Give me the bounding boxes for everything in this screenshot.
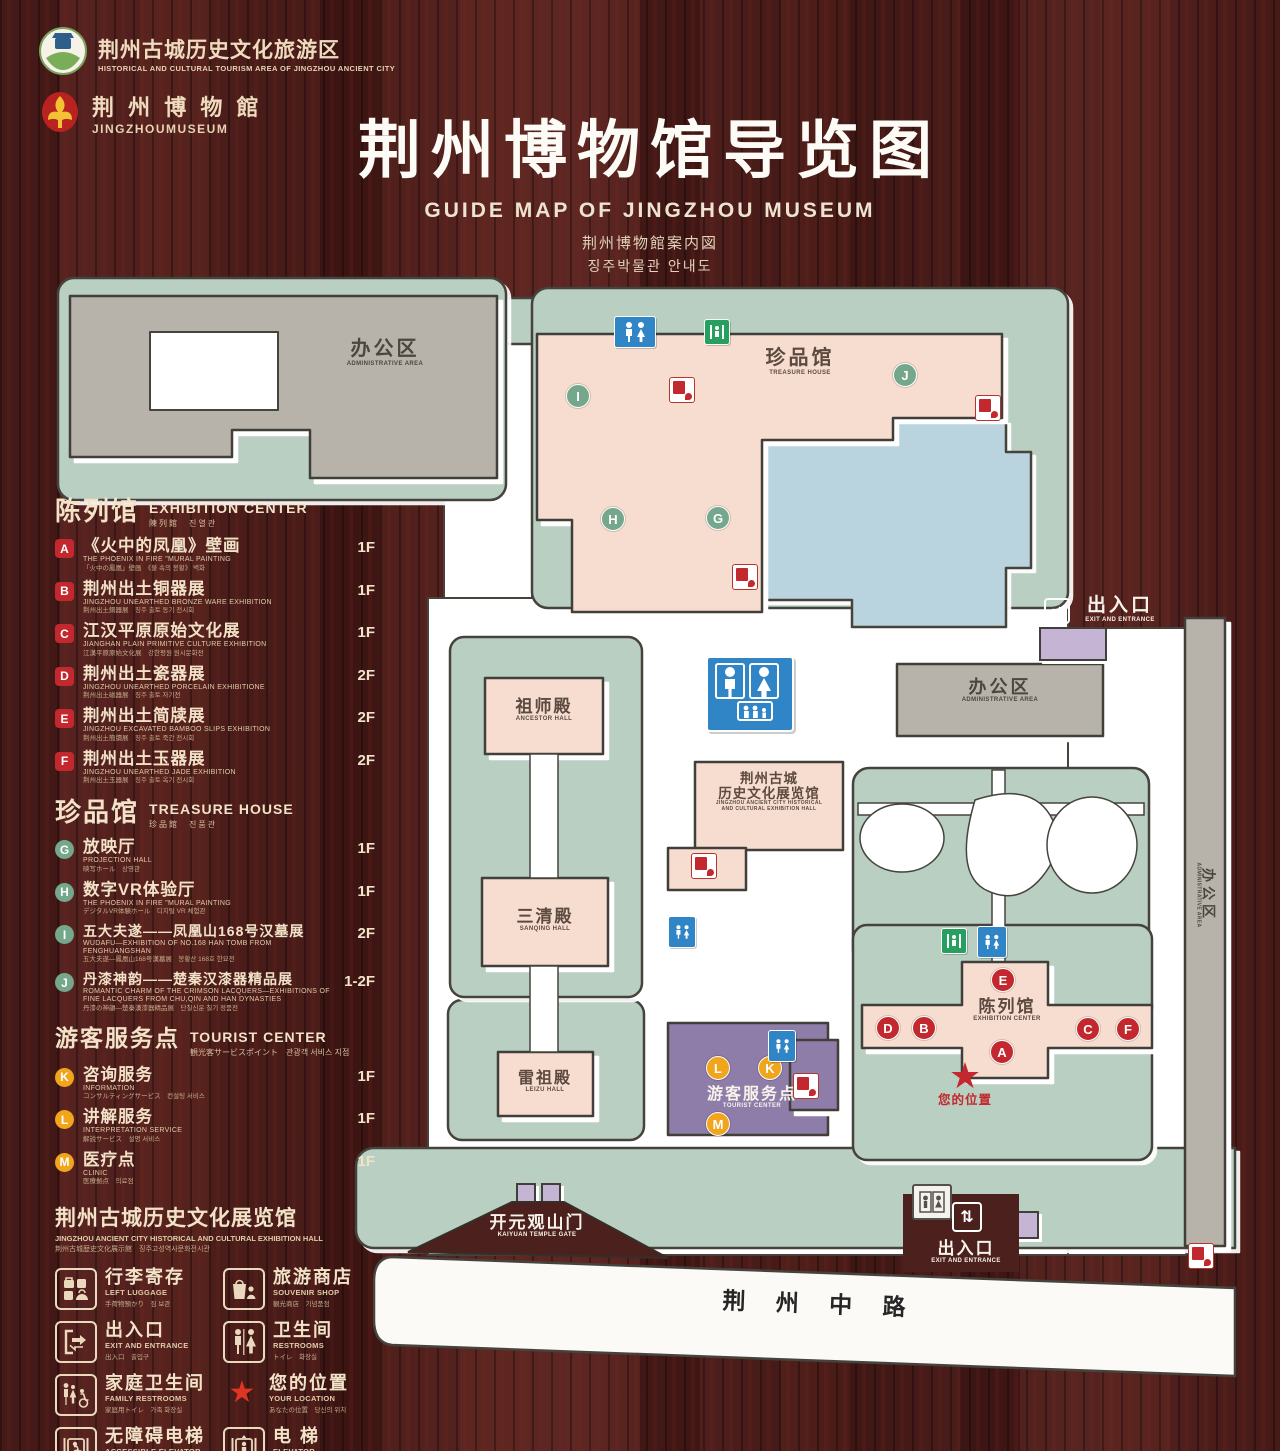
map-marker-h: H <box>601 507 625 531</box>
list-item: C 江汉平原原始文化展 JIANGHAN PLAIN PRIMITIVE CUL… <box>55 623 375 658</box>
list-item: A 《火中的凤凰》壁画 THE PHOENIX IN FIRE "MURAL P… <box>55 538 375 573</box>
item-en: THE PHOENIX IN FIRE "MURAL PAINTING <box>83 556 335 564</box>
map-marker-m: M <box>706 1112 730 1136</box>
item-en: WUDAFU—EXHIBITION OF NO.168 HAN TOMB FRO… <box>83 940 335 957</box>
item-floor: 2F <box>357 925 375 942</box>
restroom-icon <box>768 1030 796 1062</box>
list-item: E 荆州出土简牍展 JINGZHOU EXCAVATED BAMBOO SLIP… <box>55 708 375 743</box>
pond <box>742 420 1031 627</box>
map-label-exhibition-center: 陈列馆 EXHIBITION CENTER <box>973 998 1040 1023</box>
item-title: 荆州出土玉器展 <box>83 751 335 768</box>
legend-left-luggage: 行李寄存 LEFT LUGGAGE 手荷物預かり 짐 보관 <box>55 1268 223 1312</box>
marker-m: M <box>55 1153 74 1172</box>
item-floor: 1-2F <box>344 973 375 990</box>
history-hall-title: 荆州古城历史文化展览馆 <box>55 1202 375 1232</box>
map-label-leizu-hall: 雷祖殿 LEIZU HALL <box>518 1070 572 1094</box>
item-title: 荆州出土瓷器展 <box>83 666 335 683</box>
legend-elevator: 电 梯 ELEVATOR エレベーター 엘리베이터 <box>223 1427 373 1451</box>
legend-souvenir-shop: 旅游商店 SOUVENIR SHOP 観光商店 기념품점 <box>223 1268 373 1312</box>
admin-courtyard <box>150 332 278 410</box>
poster-title: 荆州博物馆导览图 <box>300 100 1000 191</box>
item-floor: 1F <box>357 624 375 641</box>
item-sub: 江漢平原原始文化展 강한평원 원시문화전 <box>83 650 335 658</box>
item-en: JINGZHOU UNEARTHED PORCELAIN EXHIBITIONE <box>83 684 335 692</box>
marker-l: L <box>55 1110 74 1129</box>
map-label-admin-strip: 办公区 ADMINISTRATIVE AREA <box>1195 862 1216 927</box>
list-item: D 荆州出土瓷器展 JINGZHOU UNEARTHED PORCELAIN E… <box>55 666 375 701</box>
history-hall-en: JINGZHOU ANCIENT CITY HISTORICAL AND CUL… <box>55 1234 375 1243</box>
map-label-your-location: 您的位置 <box>938 1094 992 1108</box>
your-location-star-icon: ★ <box>223 1374 261 1412</box>
map-marker-f: F <box>1116 1017 1140 1041</box>
item-floor: 1F <box>357 1153 375 1170</box>
guide-map-poster: 荆州古城历史文化旅游区 HISTORICAL AND CULTURAL TOUR… <box>0 0 1280 1451</box>
item-sub: 荆州出土簡牘展 징주 출토 죽간 전시회 <box>83 735 335 743</box>
item-title: 医疗点 <box>83 1152 335 1169</box>
marker-i: I <box>55 925 74 944</box>
marker-j: J <box>55 973 74 992</box>
item-title: 五大夫遂——凤凰山168号汉墓展 <box>83 924 335 939</box>
family-restrooms-icon <box>55 1374 97 1416</box>
tourism-area-title: 荆州古城历史文化旅游区 <box>98 34 395 64</box>
item-title: 江汉平原原始文化展 <box>83 623 335 640</box>
history-hall-sub: 荆州古城歴史文化展示館 징주고성역사문화전시관 <box>55 1244 375 1254</box>
road-shape <box>374 1257 1235 1376</box>
section-title: 陈列馆 <box>55 498 139 524</box>
tourism-area-subtitle: HISTORICAL AND CULTURAL TOURISM AREA OF … <box>98 64 395 73</box>
restroom-block-icon <box>706 656 794 732</box>
section-title-en: TREASURE HOUSE <box>149 802 294 816</box>
legend-restrooms: 卫生间 RESTROOMS トイレ 화장실 <box>223 1321 373 1365</box>
item-floor: 1F <box>357 539 375 556</box>
museum-title: 荆 州 博 物 館 <box>92 90 262 122</box>
section-title-sub: 陳列館 진열관 <box>149 518 308 529</box>
map-label-tourist-center: 游客服务点 TOURIST CENTER <box>707 1086 797 1110</box>
item-floor: 2F <box>357 667 375 684</box>
accessible-elevator-icon <box>732 564 758 590</box>
section-exhibition-center: 陈列馆 EXHIBITION CENTER 陳列館 진열관 <box>55 498 375 529</box>
item-en: JINGZHOU UNEARTHED JADE EXHIBITION <box>83 769 335 777</box>
poster-title-en: GUIDE MAP OF JINGZHOU MUSEUM <box>300 199 1000 223</box>
map-marker-e: E <box>991 968 1015 992</box>
garden-pond-west <box>860 804 944 872</box>
item-en: INTERPRETATION SERVICE <box>83 1127 335 1135</box>
item-sub: 荆州出土銅器展 징주 출토 동기 전시회 <box>83 607 335 615</box>
elevator-icon <box>704 319 730 345</box>
map-label-treasure-house: 珍品馆 TREASURE HOUSE <box>766 348 835 376</box>
item-floor: 1F <box>357 1110 375 1127</box>
gate-pillar-west <box>517 1184 535 1203</box>
marker-k: K <box>55 1068 74 1087</box>
restrooms-icon <box>223 1321 265 1363</box>
museum-phoenix-icon <box>38 86 82 139</box>
item-en: JINGZHOU UNEARTHED BRONZE WARE EXHIBITIO… <box>83 599 335 607</box>
map-label-exit-northeast: 出入口 EXIT AND ENTRANCE <box>1085 596 1155 623</box>
list-item: K 咨询服务 INFORMATION コンサルティングサービス 컨설팅 서비스 … <box>55 1067 375 1102</box>
map-marker-j: J <box>893 363 917 387</box>
marker-g: G <box>55 840 74 859</box>
accessible-elevator-icon <box>669 377 695 403</box>
legend-sidebar: 陈列馆 EXHIBITION CENTER 陳列館 진열관 A 《火中的凤凰》壁… <box>55 498 375 1451</box>
legend-grid: 行李寄存 LEFT LUGGAGE 手荷物預かり 짐 보관 旅游商店 SOUVE… <box>55 1268 375 1451</box>
item-floor: 1F <box>357 840 375 857</box>
accessible-elevator-icon <box>691 853 717 879</box>
item-floor: 1F <box>357 1068 375 1085</box>
section-history-hall: 荆州古城历史文化展览馆 JINGZHOU ANCIENT CITY HISTOR… <box>55 1202 375 1254</box>
poster-title-ja: 荆州博物館案内図 <box>300 232 1000 253</box>
souvenir-shop-icon <box>223 1268 265 1310</box>
list-item: I 五大夫遂——凤凰山168号汉墓展 WUDAFU—EXHIBITION OF … <box>55 924 375 964</box>
item-sub: 荆州出土磁器展 징주 출토 자기전 <box>83 692 335 700</box>
poster-title-block: 荆州博物馆导览图 GUIDE MAP OF JINGZHOU MUSEUM 荆州… <box>300 100 1000 276</box>
map-marker-c: C <box>1076 1017 1100 1041</box>
marker-h: H <box>55 883 74 902</box>
item-floor: 1F <box>357 582 375 599</box>
marker-e: E <box>55 709 74 728</box>
list-item: L 讲解服务 INTERPRETATION SERVICE 解説サービス 설명 … <box>55 1109 375 1144</box>
section-title-sub: 珍品館 진품관 <box>149 819 294 830</box>
item-title: 咨询服务 <box>83 1067 335 1084</box>
item-en: PROJECTION HALL <box>83 857 335 865</box>
restroom-icon <box>977 926 1007 958</box>
item-title: 《火中的凤凰》壁画 <box>83 538 335 555</box>
accessible-elevator-icon <box>1188 1243 1214 1269</box>
section-title-en: EXHIBITION CENTER <box>149 501 308 515</box>
map-label-exit-south: 出入口 EXIT AND ENTRANCE <box>931 1240 1001 1265</box>
marker-a: A <box>55 539 74 558</box>
building-lavender-northeast <box>1040 628 1106 660</box>
map-marker-i: I <box>566 384 590 408</box>
marker-d: D <box>55 667 74 686</box>
marker-b: B <box>55 582 74 601</box>
section-tourist-center: 游客服务点 TOURIST CENTER 観光客サービスポイント 관광객 서비스… <box>55 1027 375 1058</box>
map-marker-d: D <box>876 1016 900 1040</box>
item-sub: 荆州出土玉器展 징주 출토 옥기 전시회 <box>83 777 335 785</box>
item-en: THE PHOENIX IN FIRE "MURAL PAINTING <box>83 900 335 908</box>
list-item: H 数字VR体验厅 THE PHOENIX IN FIRE "MURAL PAI… <box>55 882 375 917</box>
section-title-sub: 観光客サービスポイント 관광객 서비스 지점 <box>190 1047 349 1058</box>
map-marker-a: A <box>990 1040 1014 1064</box>
map-label-admin-east: 办公区 ADMINISTRATIVE AREA <box>962 678 1039 704</box>
item-sub: コンサルティングサービス 컨설팅 서비스 <box>83 1093 335 1101</box>
map-label-kaiyuan-gate: 开元观山门 KAIYUAN TEMPLE GATE <box>490 1214 585 1239</box>
map-label-admin-northwest: 办公区 ADMINISTRATIVE AREA <box>347 339 424 367</box>
museum-logo: 荆 州 博 物 館 JINGZHOUMUSEUM <box>38 86 262 139</box>
item-title: 讲解服务 <box>83 1109 335 1126</box>
item-floor: 2F <box>357 752 375 769</box>
accessible-elevator-icon <box>975 395 1001 421</box>
item-title: 放映厅 <box>83 839 335 856</box>
item-floor: 1F <box>357 883 375 900</box>
list-item: G 放映厅 PROJECTION HALL 映写ホール 상영관 1F <box>55 839 375 874</box>
section-title: 游客服务点 <box>55 1027 180 1050</box>
tourism-area-emblem-icon <box>38 26 88 81</box>
section-title-en: TOURIST CENTER <box>190 1030 349 1044</box>
exit-entrance-icon: ⇅ <box>952 1202 982 1232</box>
item-sub: 医療拠点 의료점 <box>83 1178 335 1186</box>
exit-entrance-icon: ⇄ <box>1044 598 1070 624</box>
your-location-star-icon: ★ <box>949 1058 981 1094</box>
elevator-icon <box>223 1427 265 1451</box>
item-title: 丹漆神韵——楚秦汉漆器精品展 <box>83 972 335 987</box>
elevator-icon <box>941 928 967 954</box>
left-luggage-icon <box>55 1268 97 1310</box>
list-item: J 丹漆神韵——楚秦汉漆器精品展 ROMANTIC CHARM OF THE C… <box>55 972 375 1012</box>
item-sub: 「火中の鳳凰」壁画 《불 속의 봉황》 벽화 <box>83 565 335 573</box>
marker-f: F <box>55 752 74 771</box>
item-en: INFORMATION <box>83 1085 335 1093</box>
museum-subtitle: JINGZHOUMUSEUM <box>92 122 262 136</box>
marker-c: C <box>55 624 74 643</box>
restroom-icon <box>614 316 656 348</box>
gate-pillar-east <box>542 1184 560 1203</box>
accessible-elevator-icon <box>55 1427 97 1451</box>
map-marker-b: B <box>912 1016 936 1040</box>
accessible-elevator-icon <box>793 1073 819 1099</box>
temple-path-2 <box>530 966 558 1052</box>
item-sub: 解説サービス 설명 서비스 <box>83 1136 335 1144</box>
item-en: JINGZHOU EXCAVATED BAMBOO SLIPS EXHIBITI… <box>83 726 335 734</box>
temple-path-1 <box>530 754 558 878</box>
exit-entrance-icon <box>55 1321 97 1363</box>
item-sub: 五大夫遂—鳳凰山168号漢墓展 봉황산 168호 한묘전 <box>83 956 335 964</box>
legend-family-restrooms: 家庭卫生间 FAMILY RESTROOMS 家庭用トイレ 가족 화장실 <box>55 1374 223 1418</box>
item-en: JIANGHAN PLAIN PRIMITIVE CULTURE EXHIBIT… <box>83 641 335 649</box>
item-en: CLINIC <box>83 1170 335 1178</box>
item-sub: 映写ホール 상영관 <box>83 866 335 874</box>
tourism-area-logo: 荆州古城历史文化旅游区 HISTORICAL AND CULTURAL TOUR… <box>38 26 395 81</box>
item-title: 荆州出土铜器展 <box>83 581 335 598</box>
map-label-history-hall: 荆州古城 历史文化展览馆 JINGZHOU ANCIENT CITY HISTO… <box>716 772 823 812</box>
item-sub: 丹漆の神韻—楚秦漢漆器精品展 단칠신운 칠기 정품전 <box>83 1005 335 1013</box>
map-marker-g: G <box>706 506 730 530</box>
legend-accessible-elevator: 无障碍电梯 ACCESSIBLE ELEVATOR バリアフリーエレベーター 장… <box>55 1427 223 1451</box>
building-admin-strip <box>1185 618 1225 1246</box>
garden-pond-east <box>1047 797 1137 893</box>
list-item: B 荆州出土铜器展 JINGZHOU UNEARTHED BRONZE WARE… <box>55 581 375 616</box>
legend-your-location: ★ 您的位置 YOUR LOCATION あなたの位置 당신의 위치 <box>223 1374 373 1418</box>
section-title: 珍品馆 <box>55 799 139 825</box>
poster-title-ko: 징주박물관 안내도 <box>300 256 1000 276</box>
item-floor: 2F <box>357 709 375 726</box>
restroom-icon <box>912 1184 952 1220</box>
legend-exit-entrance: 出入口 EXIT AND ENTRANCE 出入口 출입구 <box>55 1321 223 1365</box>
item-title: 数字VR体验厅 <box>83 882 335 899</box>
restroom-icon <box>668 916 696 948</box>
item-sub: デジタルVR体験ホール 디지털 VR 체험관 <box>83 908 335 916</box>
map-label-sanqing-hall: 三清殿 SANQING HALL <box>517 908 574 933</box>
item-title: 荆州出土简牍展 <box>83 708 335 725</box>
item-en: ROMANTIC CHARM OF THE CRIMSON LACQUERS—E… <box>83 988 335 1005</box>
list-item: F 荆州出土玉器展 JINGZHOU UNEARTHED JADE EXHIBI… <box>55 751 375 786</box>
list-item: M 医疗点 CLINIC 医療拠点 의료점 1F <box>55 1152 375 1187</box>
map-label-ancestor-hall: 祖师殿 ANCESTOR HALL <box>516 698 573 723</box>
map-marker-l: L <box>706 1056 730 1080</box>
section-treasure-house: 珍品馆 TREASURE HOUSE 珍品館 진품관 <box>55 799 375 830</box>
